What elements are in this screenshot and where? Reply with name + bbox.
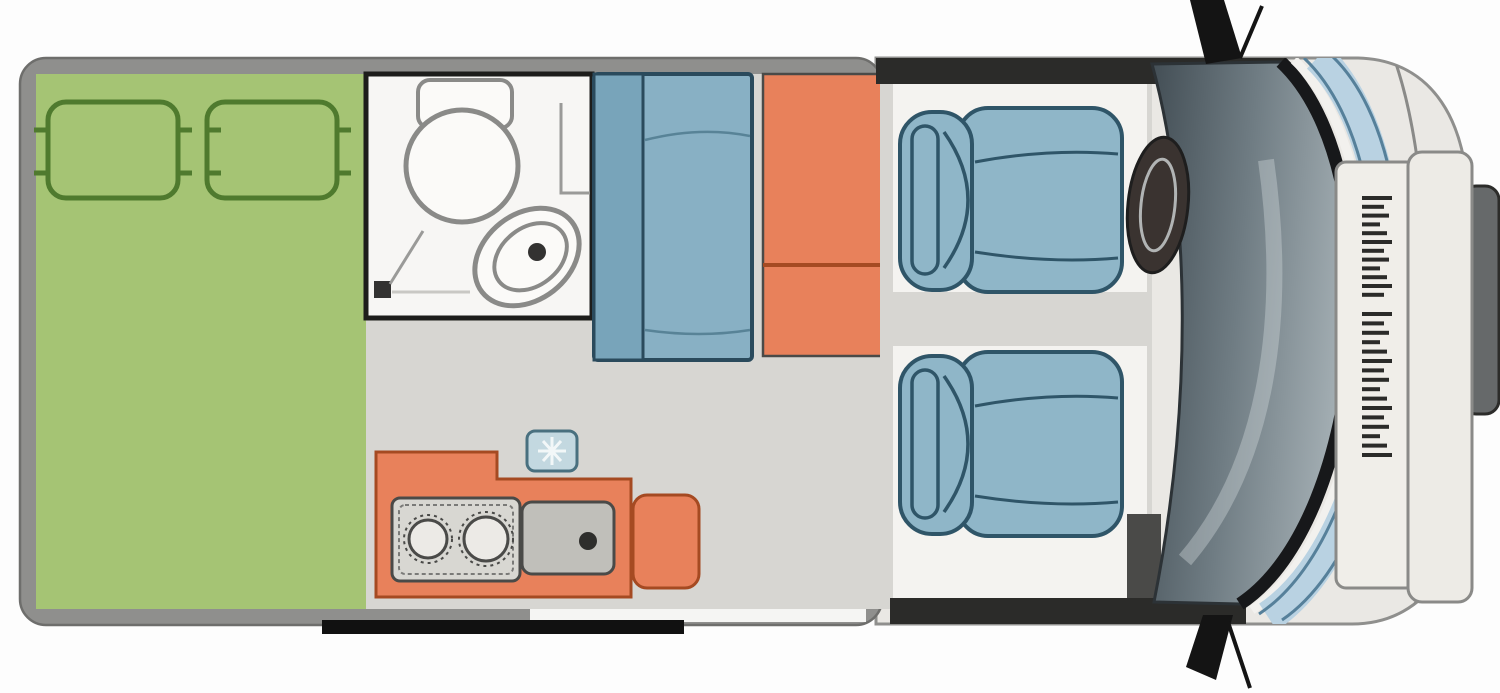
grille-hatch-mark <box>1362 196 1392 200</box>
bedroom-floor-bed <box>36 74 366 609</box>
passenger-seat-cushion <box>958 352 1122 536</box>
grille-hatch-mark <box>1362 340 1380 344</box>
grille-hatch-mark <box>1362 359 1392 363</box>
entry-step <box>322 620 684 634</box>
passenger-seat <box>900 352 1122 536</box>
grille-hatch-mark <box>1362 258 1389 262</box>
grille-hatch-mark <box>1362 275 1387 279</box>
grille-hatch-mark <box>1362 397 1387 401</box>
bumper-panel <box>1408 152 1472 602</box>
grille-hatch-mark <box>1362 378 1389 382</box>
driver-seat <box>900 108 1122 292</box>
grille-hatch-mark <box>1362 434 1380 438</box>
grille-hatch-mark <box>1362 425 1389 429</box>
sofa-backrest <box>594 74 643 360</box>
side-mirror-top-arm <box>1240 6 1262 58</box>
grille-hatch-mark <box>1362 222 1380 226</box>
grille-hatch-mark <box>1362 214 1389 218</box>
grille-hatch-mark <box>1362 331 1389 335</box>
grille-hatch-mark <box>1362 249 1384 253</box>
washbasin-drain <box>528 243 546 261</box>
grille-hatch-mark <box>1362 350 1387 354</box>
grille-hatch-mark <box>1362 205 1384 209</box>
sofa-bench <box>594 74 752 360</box>
grille-hatch-mark <box>1362 312 1392 316</box>
grille-hatch-mark <box>1362 293 1384 297</box>
grille-hatch-mark <box>1362 284 1392 288</box>
grille-hatch-mark <box>1362 406 1392 410</box>
kitchen-sink-drain <box>579 532 597 550</box>
door-pivot-block <box>374 281 391 298</box>
side-mirror-bottom-arm <box>1228 622 1250 688</box>
grille-hatch-mark <box>1362 240 1392 244</box>
stove-burner-right <box>464 517 508 561</box>
grille-hatch-mark <box>1362 266 1380 270</box>
bathroom <box>366 74 598 326</box>
grille-hatch-mark <box>1362 321 1384 325</box>
kitchen-counter-extension <box>633 495 699 588</box>
toilet-bowl <box>406 110 518 222</box>
kitchen-sink <box>522 502 614 574</box>
driver-seat-cushion <box>958 108 1122 292</box>
wardrobe <box>763 74 896 356</box>
stove-burner-left <box>409 520 447 558</box>
floorplan-canvas <box>0 0 1500 693</box>
grille-hatch-mark <box>1362 231 1387 235</box>
grille-hatch-mark <box>1362 415 1384 419</box>
grille-hatch-mark <box>1362 453 1392 457</box>
grille-hatch-mark <box>1362 387 1380 391</box>
floorplan-stage <box>0 0 1500 693</box>
front-assembly <box>1152 56 1420 624</box>
grille-hatch-mark <box>1362 444 1387 448</box>
side-mirror-top <box>1190 0 1242 64</box>
grille-hatch-mark <box>1362 368 1384 372</box>
wardrobe-body <box>763 74 896 356</box>
